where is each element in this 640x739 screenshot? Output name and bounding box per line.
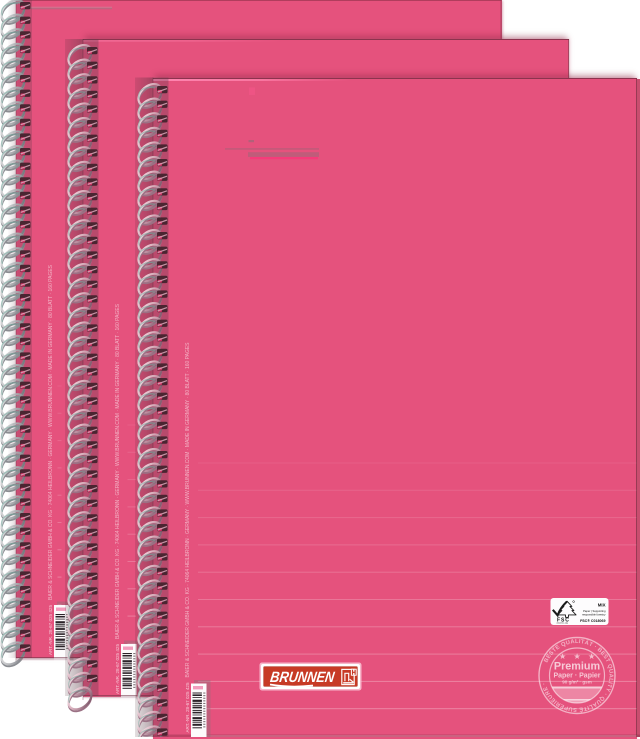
svg-text:responsible forestry: responsible forestry (582, 612, 606, 616)
svg-text:www.fsc.org: www.fsc.org (557, 622, 569, 625)
svg-text:Paper | Supporting: Paper | Supporting (583, 609, 606, 613)
svg-text:BAIER & SCHNEIDER GMBH & CO. K: BAIER & SCHNEIDER GMBH & CO. KG · 74064 … (115, 304, 121, 639)
svg-text:Paper · Papier: Paper · Papier (553, 673, 600, 680)
svg-text:Premium: Premium (554, 661, 600, 673)
svg-text:90 g/m² · gsm: 90 g/m² · gsm (562, 680, 592, 685)
svg-text:FSC® C018069: FSC® C018069 (580, 619, 605, 623)
svg-text:ART.-NR. 28-67 025 425: ART.-NR. 28-67 025 425 (115, 644, 120, 694)
svg-text:★: ★ (559, 652, 566, 661)
svg-text:★: ★ (574, 652, 581, 661)
svg-text:★: ★ (588, 652, 595, 661)
svg-text:ART.-NR. 28-67 025 425: ART.-NR. 28-67 025 425 (48, 605, 53, 655)
svg-text:MIX: MIX (598, 603, 606, 608)
svg-text:BAIER & SCHNEIDER GMBH & CO. K: BAIER & SCHNEIDER GMBH & CO. KG · 74064 … (185, 342, 191, 677)
svg-text:BRUNNEN: BRUNNEN (269, 669, 336, 686)
svg-text:BAIER & SCHNEIDER GMBH & CO. K: BAIER & SCHNEIDER GMBH & CO. KG · 74064 … (48, 265, 54, 600)
svg-text:ART.-NR. 28-67 025 425: ART.-NR. 28-67 025 425 (185, 682, 190, 732)
